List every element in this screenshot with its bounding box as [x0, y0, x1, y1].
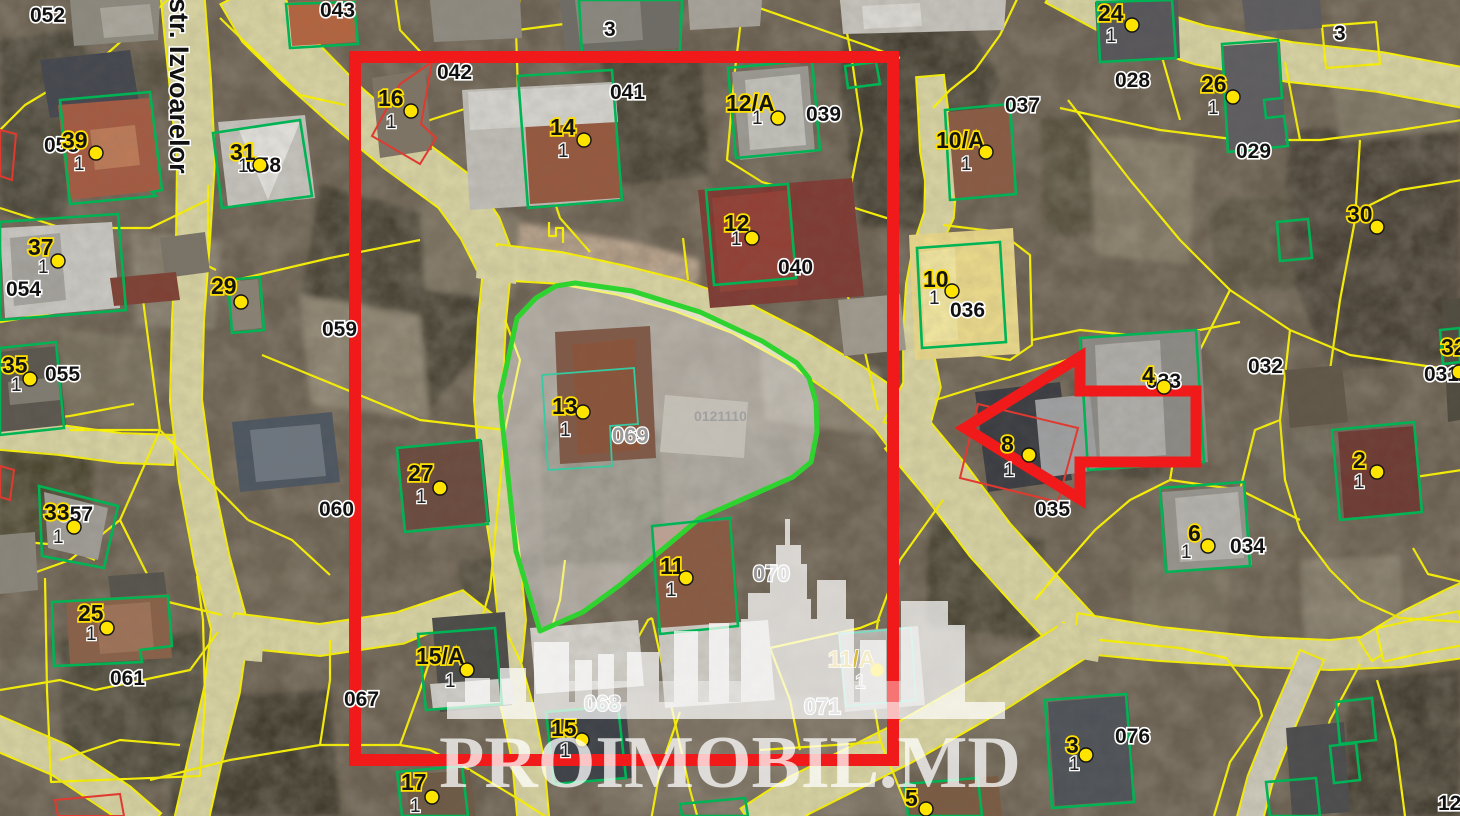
svg-text:1: 1	[752, 108, 763, 129]
svg-text:0121110: 0121110	[694, 408, 747, 424]
svg-text:029: 029	[1236, 140, 1271, 163]
svg-text:3: 3	[604, 18, 616, 41]
svg-text:028: 028	[1115, 69, 1150, 92]
svg-text:054: 054	[6, 278, 41, 301]
svg-text:27: 27	[408, 460, 434, 486]
svg-text:26: 26	[1201, 71, 1227, 97]
svg-text:15/A: 15/A	[416, 643, 465, 669]
svg-text:069: 069	[612, 423, 649, 448]
svg-text:076: 076	[1115, 725, 1150, 748]
svg-text:059: 059	[322, 318, 357, 341]
svg-text:1: 1	[1004, 460, 1015, 481]
svg-text:PROIMOBIL.MD: PROIMOBIL.MD	[439, 722, 1021, 804]
svg-text:067: 067	[344, 688, 379, 711]
svg-text:061: 061	[110, 667, 145, 690]
svg-text:14: 14	[550, 114, 576, 140]
svg-text:33: 33	[44, 499, 70, 525]
svg-text:1: 1	[1069, 754, 1080, 775]
svg-text:1: 1	[11, 375, 22, 396]
svg-text:1: 1	[560, 420, 571, 441]
svg-text:1: 1	[558, 141, 569, 162]
svg-text:042: 042	[437, 61, 472, 84]
svg-text:30: 30	[1347, 201, 1373, 227]
svg-text:str. Izvoarelor: str. Izvoarelor	[164, 0, 194, 174]
svg-text:2: 2	[1353, 447, 1366, 473]
svg-text:060: 060	[319, 498, 354, 521]
svg-text:052: 052	[30, 4, 65, 27]
svg-text:1: 1	[86, 624, 97, 645]
svg-text:039: 039	[806, 103, 841, 126]
svg-text:3: 3	[1334, 22, 1346, 45]
svg-text:4: 4	[1142, 362, 1155, 388]
svg-text:035: 035	[1035, 498, 1070, 521]
svg-text:13: 13	[552, 393, 578, 419]
svg-text:1: 1	[929, 288, 940, 309]
svg-text:032: 032	[1248, 355, 1283, 378]
svg-text:034: 034	[1230, 535, 1265, 558]
svg-text:8: 8	[1001, 431, 1014, 457]
svg-text:16: 16	[378, 85, 404, 111]
svg-text:040: 040	[778, 256, 813, 279]
svg-text:1: 1	[1106, 26, 1117, 47]
svg-text:1: 1	[238, 156, 249, 177]
svg-text:39: 39	[62, 127, 88, 153]
svg-text:037: 037	[1005, 94, 1040, 117]
svg-text:12/A: 12/A	[726, 90, 775, 116]
svg-text:1: 1	[731, 229, 742, 250]
svg-text:17: 17	[401, 769, 427, 795]
svg-text:055: 055	[45, 363, 80, 386]
svg-text:1: 1	[416, 487, 427, 508]
svg-text:041: 041	[610, 81, 645, 104]
svg-text:1: 1	[386, 112, 397, 133]
svg-text:043: 043	[320, 0, 355, 22]
svg-text:25: 25	[78, 600, 104, 626]
svg-text:1: 1	[445, 671, 456, 692]
svg-text:1: 1	[410, 796, 421, 816]
svg-text:036: 036	[950, 299, 985, 322]
svg-text:24: 24	[1098, 0, 1124, 26]
svg-text:32: 32	[1441, 334, 1460, 360]
svg-text:1: 1	[74, 154, 85, 175]
svg-text:1: 1	[1208, 98, 1219, 119]
svg-text:1: 1	[53, 527, 64, 548]
svg-text:1: 1	[38, 257, 49, 278]
svg-text:29: 29	[211, 273, 237, 299]
svg-text:10/A: 10/A	[936, 127, 985, 153]
svg-text:1: 1	[1181, 542, 1192, 563]
svg-text:1: 1	[961, 154, 972, 175]
svg-text:12: 12	[1438, 792, 1460, 815]
svg-text:1: 1	[666, 580, 677, 601]
svg-text:1: 1	[1354, 472, 1365, 493]
